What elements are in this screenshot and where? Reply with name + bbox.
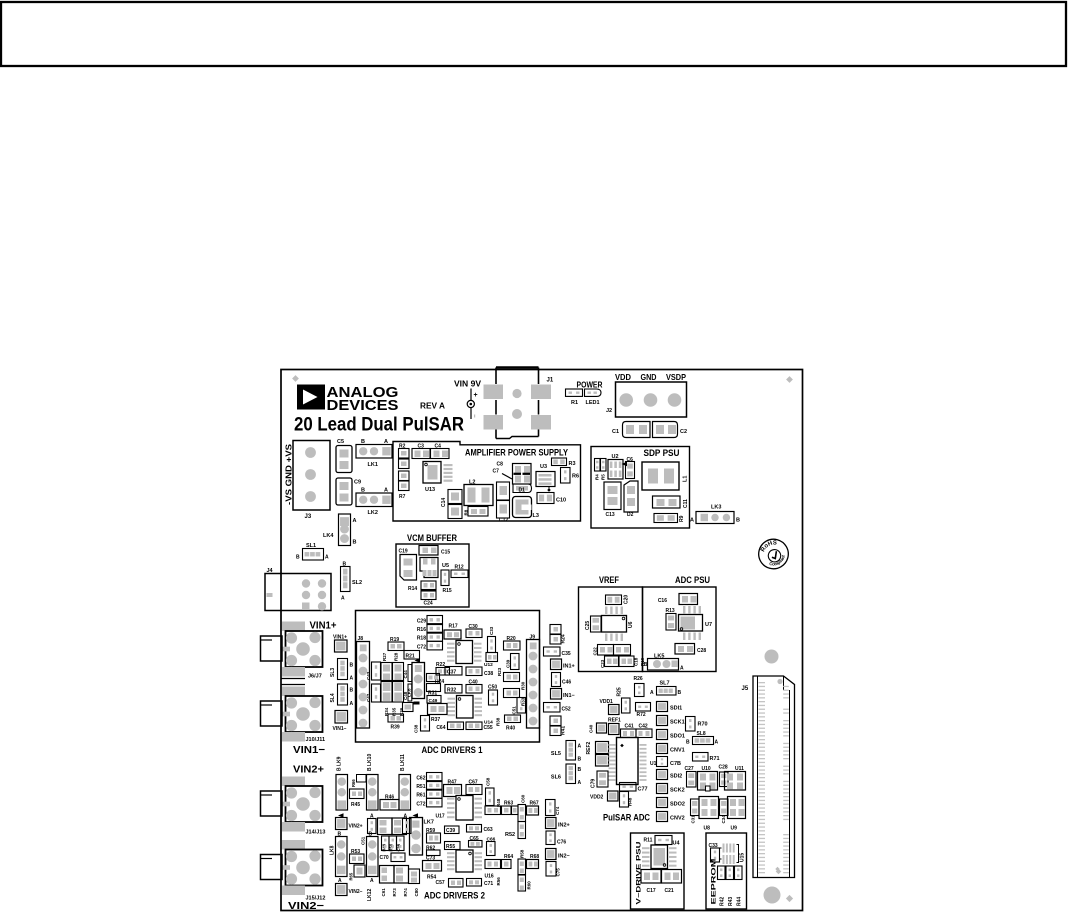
svg-text:A: A <box>578 744 582 750</box>
svg-text:C38: C38 <box>484 671 493 677</box>
svg-text:C51: C51 <box>512 706 517 715</box>
svg-text:U16: U16 <box>485 874 494 880</box>
svg-text:LK4: LK4 <box>323 533 334 539</box>
svg-text:REF1: REF1 <box>608 718 621 724</box>
svg-text:C62: C62 <box>416 776 425 782</box>
svg-text:LK12: LK12 <box>367 889 373 901</box>
svg-text:R21: R21 <box>406 654 415 660</box>
svg-text:VIN1−: VIN1− <box>333 726 347 732</box>
svg-text:U3: U3 <box>540 464 547 470</box>
svg-text:SDO2: SDO2 <box>670 802 685 808</box>
svg-text:R44: R44 <box>737 897 743 906</box>
svg-text:VCM BUFFER: VCM BUFFER <box>407 533 457 543</box>
svg-text:B: B <box>686 740 690 746</box>
svg-text:R4: R4 <box>595 474 600 480</box>
svg-text:R40: R40 <box>506 726 515 732</box>
svg-text:U1: U1 <box>650 761 657 767</box>
svg-text:C20: C20 <box>624 595 630 604</box>
svg-text:R27: R27 <box>382 652 387 661</box>
svg-text:IN1−: IN1− <box>563 693 575 699</box>
svg-text:C16: C16 <box>658 598 667 604</box>
svg-text:R58: R58 <box>520 849 525 858</box>
svg-text:U5: U5 <box>442 563 449 569</box>
svg-text:C38: C38 <box>414 724 419 733</box>
svg-text:C64: C64 <box>436 725 445 731</box>
svg-text:C34: C34 <box>721 815 726 824</box>
svg-text:C55: C55 <box>484 725 493 731</box>
svg-text:C6: C6 <box>627 457 634 463</box>
svg-text:C10: C10 <box>556 498 566 504</box>
svg-text:VSDP: VSDP <box>666 372 686 382</box>
svg-text:AMPLIFIER POWER SUPPLY: AMPLIFIER POWER SUPPLY <box>465 448 568 458</box>
svg-text:B: B <box>353 540 357 546</box>
svg-text:A: A <box>353 518 357 524</box>
svg-text:VIN1−: VIN1− <box>293 744 325 756</box>
svg-text:R9: R9 <box>679 515 685 522</box>
svg-text:IN2−: IN2− <box>558 854 570 860</box>
svg-text:POWER: POWER <box>577 380 603 390</box>
svg-text:C52: C52 <box>562 707 571 713</box>
svg-text:C46: C46 <box>562 680 571 686</box>
svg-text:C24: C24 <box>424 601 433 607</box>
svg-text:R56: R56 <box>496 877 501 886</box>
svg-text:C47: C47 <box>366 693 371 702</box>
svg-text:B: B <box>644 662 648 668</box>
svg-text:B LK11: B LK11 <box>400 754 406 771</box>
svg-text:R14: R14 <box>408 586 417 592</box>
svg-text:R6: R6 <box>572 474 579 480</box>
svg-text:C57: C57 <box>436 880 445 886</box>
svg-text:C39: C39 <box>506 659 511 668</box>
svg-text:R70: R70 <box>698 722 708 728</box>
svg-text:U4: U4 <box>673 841 681 847</box>
svg-text:C77: C77 <box>638 787 648 793</box>
svg-text:REF2: REF2 <box>586 742 592 755</box>
svg-text:R32: R32 <box>447 688 456 694</box>
svg-text:C58: C58 <box>486 777 491 786</box>
svg-text:C49: C49 <box>429 698 438 704</box>
svg-text:A: A <box>715 740 719 746</box>
svg-text:SCK1: SCK1 <box>670 720 685 726</box>
svg-text:VIN2−: VIN2− <box>349 889 363 895</box>
svg-text:R41: R41 <box>561 726 567 735</box>
svg-text:B: B <box>350 688 354 694</box>
svg-text:GND: GND <box>641 372 657 382</box>
svg-text:R45: R45 <box>351 802 360 808</box>
svg-text:VIN2−: VIN2− <box>288 900 324 912</box>
svg-text:J6/J7: J6/J7 <box>308 674 322 680</box>
svg-text:R24: R24 <box>561 634 567 643</box>
svg-text:R73: R73 <box>392 888 397 897</box>
svg-text:LK7: LK7 <box>424 820 434 826</box>
svg-text:R30: R30 <box>521 681 526 690</box>
svg-text:R7: R7 <box>399 494 406 500</box>
svg-text:C44: C44 <box>403 670 408 679</box>
svg-text:L1: L1 <box>683 476 689 482</box>
svg-text:+: + <box>474 392 478 399</box>
svg-text:SL4: SL4 <box>330 693 336 702</box>
svg-text:A: A <box>578 780 582 786</box>
svg-text:B LK10: B LK10 <box>367 754 373 771</box>
svg-text:B: B <box>678 690 682 696</box>
svg-text:C1: C1 <box>612 429 619 435</box>
svg-text:C7: C7 <box>493 469 500 475</box>
svg-text:L3: L3 <box>533 513 539 519</box>
svg-text:R17: R17 <box>449 624 458 630</box>
svg-text:C15: C15 <box>441 550 450 556</box>
svg-text:A: A <box>680 666 684 672</box>
svg-text:C11: C11 <box>683 499 689 508</box>
svg-text:U6: U6 <box>628 621 634 628</box>
svg-text:C39: C39 <box>446 828 455 834</box>
svg-text:SDO1: SDO1 <box>670 734 685 740</box>
svg-text:R35: R35 <box>392 707 397 716</box>
svg-text:SDI2: SDI2 <box>670 774 682 780</box>
svg-text:B: B <box>578 757 582 763</box>
svg-text:R23: R23 <box>497 667 502 676</box>
svg-text:R52: R52 <box>505 832 515 838</box>
svg-text:C43: C43 <box>366 671 371 680</box>
svg-text:R42: R42 <box>720 897 726 906</box>
svg-text:VIN1+: VIN1+ <box>310 620 337 632</box>
svg-text:R65: R65 <box>349 872 354 880</box>
svg-text:J14/J13: J14/J13 <box>306 830 326 836</box>
svg-text:R48: R48 <box>628 797 633 806</box>
svg-text:R5: R5 <box>601 474 606 480</box>
svg-text:LK6: LK6 <box>407 688 412 697</box>
svg-text:U9: U9 <box>731 826 738 832</box>
svg-text:SL2: SL2 <box>352 580 362 586</box>
svg-text:LK1: LK1 <box>368 462 378 468</box>
svg-text:C5: C5 <box>337 439 344 445</box>
svg-text:C19: C19 <box>399 549 408 555</box>
svg-text:CNV2: CNV2 <box>670 816 685 822</box>
svg-text:DEVICES: DEVICES <box>327 398 399 414</box>
svg-text:R43: R43 <box>728 897 734 906</box>
svg-text:SL5: SL5 <box>551 751 561 757</box>
svg-text:A: A <box>350 701 354 707</box>
svg-text:SL7: SL7 <box>660 681 670 687</box>
svg-text:C7B: C7B <box>670 761 681 767</box>
svg-text:-VS GND +VS: -VS GND +VS <box>285 443 294 505</box>
svg-text:IN2+: IN2+ <box>558 823 570 829</box>
svg-text:LED1: LED1 <box>586 400 600 406</box>
svg-text:U8: U8 <box>704 826 711 832</box>
svg-text:J3: J3 <box>305 514 312 520</box>
svg-text:SL6: SL6 <box>551 775 561 781</box>
svg-text:C22: C22 <box>593 647 598 656</box>
svg-text:LK8: LK8 <box>330 845 336 855</box>
svg-text:B: B <box>296 555 300 561</box>
svg-text:J1: J1 <box>547 378 554 384</box>
svg-text:SDP PSU: SDP PSU <box>644 448 680 458</box>
svg-text:IN1+: IN1+ <box>563 664 575 670</box>
svg-text:R51: R51 <box>416 784 425 790</box>
svg-text:C14: C14 <box>441 498 447 507</box>
svg-text:R60: R60 <box>527 881 532 890</box>
svg-text:R71: R71 <box>710 756 720 762</box>
svg-text:C35: C35 <box>562 651 571 657</box>
svg-text:SDI1: SDI1 <box>670 706 682 712</box>
svg-text:R38: R38 <box>496 717 501 726</box>
svg-text:B: B <box>350 663 354 669</box>
svg-text:C72: C72 <box>417 644 426 650</box>
svg-text:R66: R66 <box>351 779 356 787</box>
svg-text:A: A <box>690 518 694 524</box>
svg-text:VREF: VREF <box>599 575 619 585</box>
svg-text:VIN2+: VIN2+ <box>293 764 324 776</box>
svg-text:U15: U15 <box>740 853 746 862</box>
svg-text:C60: C60 <box>521 794 526 803</box>
svg-text:C37: C37 <box>447 670 456 676</box>
svg-text:C31: C31 <box>691 815 696 824</box>
svg-text:C80: C80 <box>414 888 419 897</box>
svg-text:C75: C75 <box>556 868 561 877</box>
svg-text:C63: C63 <box>484 827 493 833</box>
svg-text:C13: C13 <box>606 512 615 518</box>
svg-text:C9: C9 <box>354 480 361 486</box>
svg-text:C65: C65 <box>470 836 479 842</box>
svg-text:U13: U13 <box>425 487 435 493</box>
svg-text:U7: U7 <box>705 622 712 628</box>
svg-text:C79: C79 <box>591 779 597 788</box>
svg-text:U12: U12 <box>484 662 493 668</box>
svg-text:VIN2+: VIN2+ <box>349 824 363 830</box>
svg-text:R16: R16 <box>417 627 426 633</box>
svg-text:A: A <box>325 555 329 561</box>
svg-text:J5: J5 <box>742 686 749 692</box>
svg-text:R62: R62 <box>426 846 435 852</box>
svg-text:C8: C8 <box>497 462 504 468</box>
svg-text:LK3: LK3 <box>711 505 721 511</box>
svg-text:R74: R74 <box>403 888 408 897</box>
svg-text:R25: R25 <box>617 687 623 696</box>
svg-text:C21: C21 <box>665 888 674 894</box>
svg-text:D2: D2 <box>627 512 634 518</box>
svg-text:R39: R39 <box>391 725 400 731</box>
svg-text:EEPROM: EEPROM <box>712 859 718 905</box>
svg-text:R55: R55 <box>446 844 455 850</box>
svg-text:A: A <box>650 690 654 696</box>
svg-text:C76: C76 <box>557 840 566 846</box>
svg-text:C40: C40 <box>589 724 594 733</box>
svg-text:20 Lead Dual PulSAR: 20 Lead Dual PulSAR <box>294 414 464 436</box>
svg-text:R18: R18 <box>417 636 426 642</box>
svg-text:J2: J2 <box>606 408 612 414</box>
svg-text:R28: R28 <box>394 652 399 661</box>
svg-text:R72: R72 <box>637 712 646 718</box>
svg-text:ADC PSU: ADC PSU <box>675 575 710 585</box>
svg-text:R1: R1 <box>571 400 578 406</box>
svg-text:R11: R11 <box>644 838 653 844</box>
svg-text:B LK9: B LK9 <box>337 756 343 771</box>
svg-text:U17: U17 <box>436 814 445 820</box>
svg-text:SCK2: SCK2 <box>670 788 685 794</box>
svg-text:R61: R61 <box>416 793 425 799</box>
svg-text:C28: C28 <box>719 765 728 771</box>
svg-text:A: A <box>350 676 354 682</box>
svg-text:C61: C61 <box>381 888 386 897</box>
svg-text:C29: C29 <box>417 619 426 625</box>
svg-text:R3: R3 <box>569 461 576 467</box>
svg-text:C33: C33 <box>489 626 494 635</box>
svg-text:B: B <box>578 767 582 773</box>
svg-text:C28: C28 <box>697 648 706 654</box>
svg-text:SL3: SL3 <box>330 668 336 677</box>
svg-text:VDD: VDD <box>615 372 631 382</box>
svg-text:D1: D1 <box>519 488 526 494</box>
svg-text:VIN 9V: VIN 9V <box>454 380 482 389</box>
svg-text:ADC DRIVERS 2: ADC DRIVERS 2 <box>424 891 485 901</box>
svg-text:C2: C2 <box>680 429 687 435</box>
svg-text:A: A <box>341 596 345 602</box>
svg-text:C72: C72 <box>416 801 425 807</box>
svg-text:C12: C12 <box>499 518 508 524</box>
svg-text:CNV1: CNV1 <box>670 748 685 754</box>
svg-text:C17: C17 <box>647 888 656 894</box>
svg-text:J10/J11: J10/J11 <box>306 737 326 743</box>
svg-text:R37: R37 <box>431 717 440 723</box>
svg-text:PulSAR ADC: PulSAR ADC <box>603 813 650 823</box>
svg-text:C18: C18 <box>634 657 639 666</box>
svg-text:B: B <box>736 518 740 524</box>
svg-text:C71: C71 <box>484 881 493 887</box>
svg-text:C51: C51 <box>361 836 366 845</box>
svg-text:R15: R15 <box>443 588 452 594</box>
svg-text:ADC DRIVERS 1: ADC DRIVERS 1 <box>422 745 483 755</box>
svg-text:C74: C74 <box>555 806 560 815</box>
svg-text:VDD2: VDD2 <box>590 795 604 801</box>
svg-text:REV A: REV A <box>420 402 445 411</box>
svg-text:LK2: LK2 <box>368 510 378 516</box>
svg-text:A: A <box>370 878 374 884</box>
svg-text:C70: C70 <box>380 855 389 861</box>
svg-text:R26: R26 <box>634 676 643 682</box>
svg-text:C25: C25 <box>585 621 591 630</box>
